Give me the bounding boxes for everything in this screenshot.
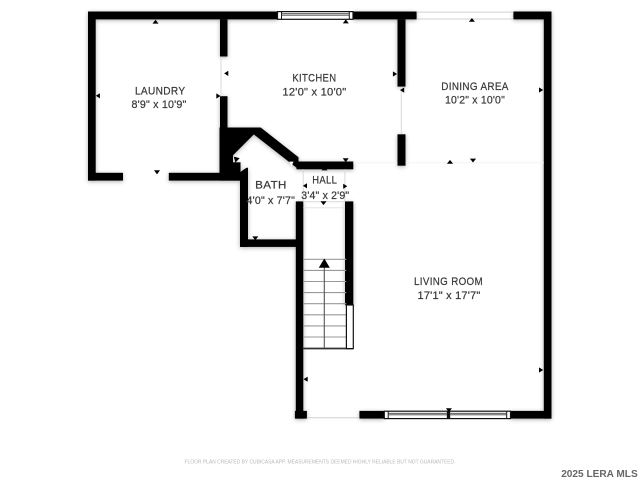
svg-text:17'1" x 17'7": 17'1" x 17'7" bbox=[418, 290, 481, 302]
svg-text:10'2" x 10'0": 10'2" x 10'0" bbox=[445, 95, 505, 107]
svg-text:4'0" x 7'7": 4'0" x 7'7" bbox=[247, 195, 296, 207]
svg-text:FLOOR PLAN CREATED BY CUBICASA: FLOOR PLAN CREATED BY CUBICASA APP. MEAS… bbox=[185, 459, 456, 465]
svg-text:3'4" x 2'9": 3'4" x 2'9" bbox=[301, 190, 349, 202]
svg-text:KITCHEN: KITCHEN bbox=[292, 73, 336, 85]
svg-text:LIVING ROOM: LIVING ROOM bbox=[414, 276, 483, 288]
svg-text:LAUNDRY: LAUNDRY bbox=[135, 86, 186, 98]
svg-text:12'0" x 10'0": 12'0" x 10'0" bbox=[282, 86, 346, 98]
svg-text:DINING AREA: DINING AREA bbox=[441, 81, 509, 93]
svg-text:2025 LERA MLS: 2025 LERA MLS bbox=[561, 469, 638, 480]
svg-text:BATH: BATH bbox=[255, 180, 287, 192]
svg-text:HALL: HALL bbox=[312, 174, 337, 186]
svg-text:8'9" x 10'9": 8'9" x 10'9" bbox=[132, 99, 187, 111]
